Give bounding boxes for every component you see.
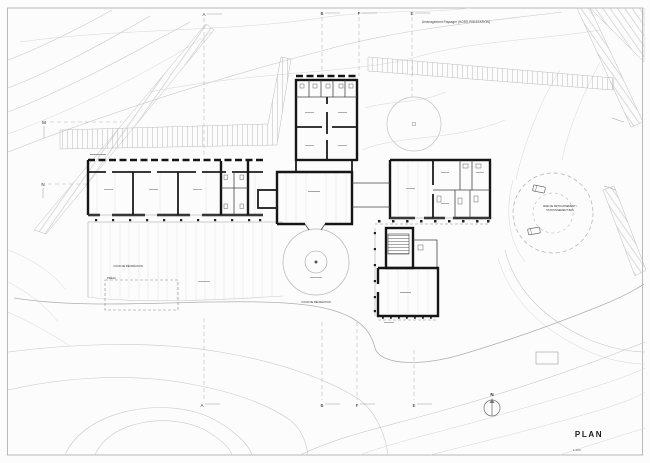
grid-marker-top-a: A bbox=[202, 12, 222, 17]
svg-text:B: B bbox=[320, 403, 323, 408]
landscaping-note: Aménagement Paysager (HORS PRESTATION) bbox=[422, 20, 490, 24]
north-wing bbox=[296, 76, 357, 172]
east-wing bbox=[352, 160, 490, 224]
north-arrow: N bbox=[484, 392, 500, 416]
bus-turnaround: AIRE DE RETOURNEMENT / STATIONNEMENT BUS bbox=[509, 173, 593, 262]
slope-hatch-bands bbox=[34, 8, 646, 276]
svg-text:N: N bbox=[41, 182, 44, 187]
circular-courtyard: COUR DE RÉCRÉATION bbox=[283, 229, 349, 304]
east-colonnade bbox=[378, 220, 490, 223]
svg-text:A: A bbox=[202, 12, 205, 17]
svg-text:E: E bbox=[412, 403, 415, 408]
grid-marker-top-b: B bbox=[320, 11, 340, 16]
cour-circle-label: COUR DE RÉCRÉATION bbox=[301, 299, 331, 304]
cour-elementaire-label: COUR DE RÉCRÉATION bbox=[113, 263, 143, 268]
svg-text:B: B bbox=[320, 11, 323, 16]
courtyard-tree bbox=[315, 261, 318, 264]
svg-text:F: F bbox=[356, 403, 359, 408]
parked-car bbox=[533, 185, 546, 193]
title-block: PLAN 1:200 bbox=[573, 430, 603, 452]
entrance-vestibule bbox=[258, 190, 277, 208]
illegible-label bbox=[198, 281, 210, 282]
svg-text:F: F bbox=[358, 11, 361, 16]
svg-text:M: M bbox=[42, 120, 46, 125]
tree-circle bbox=[387, 97, 441, 151]
right-level-ticks bbox=[604, 118, 624, 190]
grid-marker-bottom-f: F bbox=[356, 403, 375, 408]
grid-marker-bottom-a: A bbox=[200, 403, 220, 408]
parked-car bbox=[528, 227, 541, 235]
grid-marker-bottom-b: B bbox=[320, 403, 340, 408]
grid-marker-bottom-e: E bbox=[412, 403, 432, 408]
south-wing bbox=[374, 228, 438, 323]
site-plan-svg: PRÉAU COUR DE RÉCRÉATION COUR DE RÉCRÉAT… bbox=[0, 0, 650, 463]
small-pad bbox=[536, 352, 558, 364]
turnaround-label-2: STATIONNEMENT BUS bbox=[546, 208, 574, 212]
turnaround-label-1: AIRE DE RETOURNEMENT / bbox=[543, 204, 578, 208]
grid-marker-top-e: E bbox=[410, 11, 430, 16]
north-arrow-label: N bbox=[490, 392, 493, 397]
grid-axis-lines bbox=[48, 17, 414, 400]
preau-label: PRÉAU bbox=[107, 275, 116, 280]
svg-text:A: A bbox=[200, 403, 203, 408]
grid-marker-left-n: N bbox=[41, 182, 44, 198]
plan-scale: 1:200 bbox=[573, 448, 581, 452]
plan-title: PLAN bbox=[575, 430, 603, 439]
grid-marker-left-m: M bbox=[42, 120, 46, 138]
west-colonnade bbox=[95, 219, 261, 221]
svg-text:E: E bbox=[410, 11, 413, 16]
west-wing bbox=[88, 154, 263, 221]
central-hall bbox=[258, 172, 352, 230]
grid-markers: A B F E A B F E bbox=[41, 11, 624, 408]
drawing-sheet: PRÉAU COUR DE RÉCRÉATION COUR DE RÉCRÉAT… bbox=[0, 0, 650, 463]
playground-terrace: PRÉAU COUR DE RÉCRÉATION bbox=[88, 222, 283, 310]
stairs bbox=[388, 234, 409, 254]
